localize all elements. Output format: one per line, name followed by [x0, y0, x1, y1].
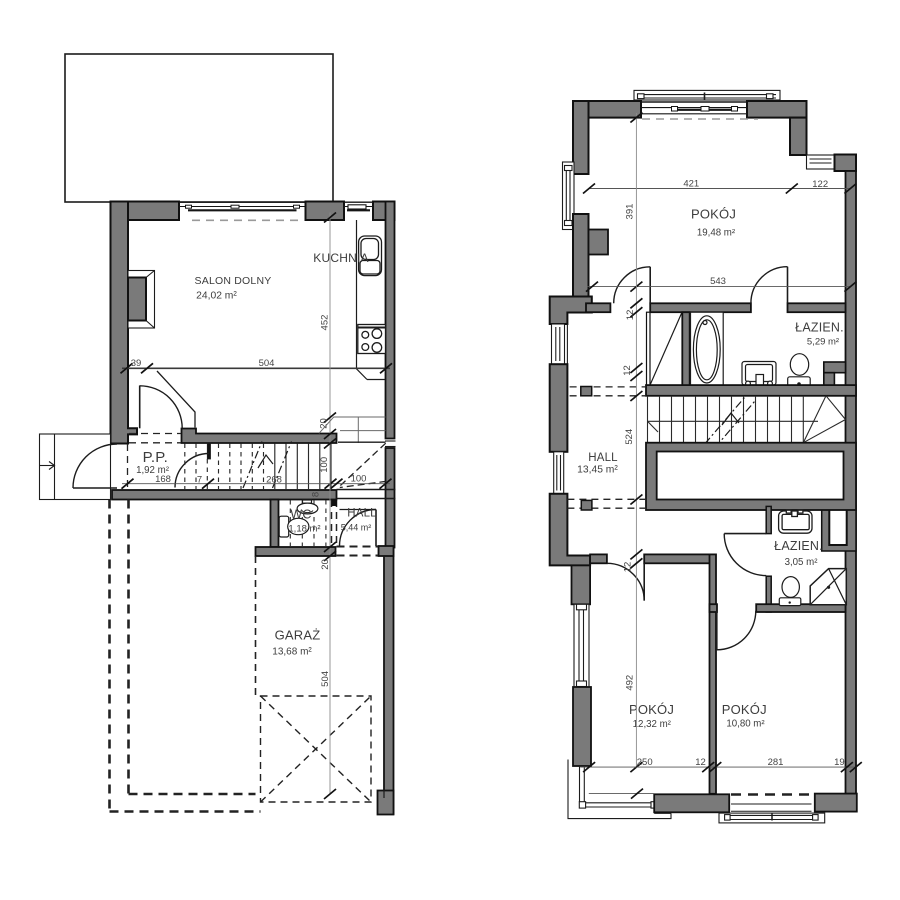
svg-text:HALL: HALL: [347, 508, 377, 520]
svg-text:504: 504: [259, 358, 275, 369]
svg-text:POKÓJ: POKÓJ: [629, 702, 674, 717]
svg-text:GARAŻ: GARAŻ: [275, 628, 321, 643]
svg-text:19: 19: [834, 757, 845, 768]
svg-text:ŁAZIEN.: ŁAZIEN.: [795, 320, 844, 334]
svg-text:19,48 m²: 19,48 m²: [697, 228, 736, 239]
svg-text:5,29 m²: 5,29 m²: [807, 336, 839, 347]
svg-text:492: 492: [624, 675, 635, 691]
svg-text:168: 168: [155, 474, 171, 485]
svg-text:8: 8: [311, 492, 322, 497]
svg-text:12: 12: [695, 757, 706, 768]
svg-text:POKÓJ: POKÓJ: [691, 207, 736, 222]
svg-text:24,02 m²: 24,02 m²: [196, 291, 237, 302]
svg-text:268: 268: [266, 475, 282, 486]
svg-text:3,05 m²: 3,05 m²: [785, 557, 819, 568]
svg-text:1,18 m²: 1,18 m²: [288, 523, 320, 534]
svg-text:5,44 m²: 5,44 m²: [341, 522, 372, 532]
svg-text:P.P.: P.P.: [143, 449, 168, 466]
svg-text:WC: WC: [290, 508, 311, 522]
svg-text:ŁAZIEN.: ŁAZIEN.: [774, 539, 823, 553]
svg-text:12: 12: [625, 310, 636, 321]
svg-text:122: 122: [812, 179, 828, 190]
svg-text:250: 250: [637, 757, 653, 768]
svg-text:452: 452: [320, 315, 331, 331]
svg-text:POKÓJ: POKÓJ: [722, 702, 767, 717]
svg-text:10,80 m²: 10,80 m²: [726, 718, 765, 729]
svg-text:20: 20: [320, 559, 331, 570]
svg-text:504: 504: [320, 671, 331, 687]
svg-text:SALON DOLNY: SALON DOLNY: [195, 275, 272, 287]
svg-text:13,45 m²: 13,45 m²: [577, 465, 618, 476]
svg-text:13,68 m²: 13,68 m²: [272, 647, 312, 658]
svg-text:100: 100: [319, 457, 330, 473]
svg-text:7: 7: [197, 474, 202, 485]
svg-text:100: 100: [351, 474, 367, 485]
svg-text:391: 391: [625, 204, 636, 220]
svg-text:421: 421: [683, 179, 699, 190]
svg-text:281: 281: [768, 757, 784, 768]
svg-text:12: 12: [622, 365, 633, 376]
svg-text:12,32 m²: 12,32 m²: [633, 719, 672, 730]
svg-text:39: 39: [131, 358, 142, 369]
svg-text:12: 12: [623, 562, 634, 573]
svg-text:543: 543: [710, 276, 726, 287]
svg-text:HALL: HALL: [588, 452, 618, 464]
svg-text:524: 524: [624, 429, 635, 445]
svg-text:KUCHNIA: KUCHNIA: [313, 251, 368, 265]
